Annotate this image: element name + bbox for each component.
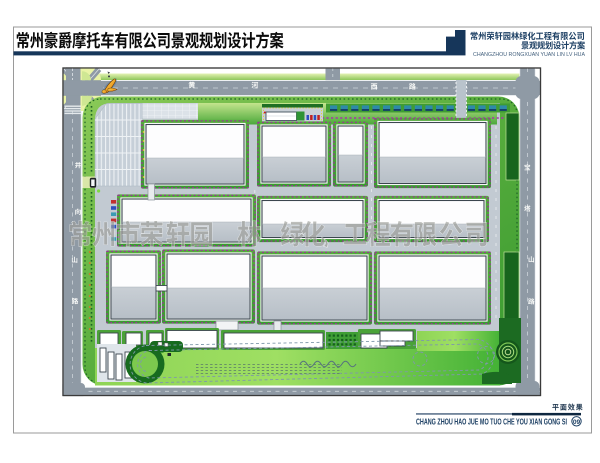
svg-text:CHANG ZHOU HAO JUE MO TUO CHE: CHANG ZHOU HAO JUE MO TUO CHE YOU XIAN G… xyxy=(416,417,567,426)
svg-text:CHANGZHOU RONGXUAN YUAN LIN LV: CHANGZHOU RONGXUAN YUAN LIN LV HUA xyxy=(473,52,585,58)
svg-text:09: 09 xyxy=(573,419,581,426)
